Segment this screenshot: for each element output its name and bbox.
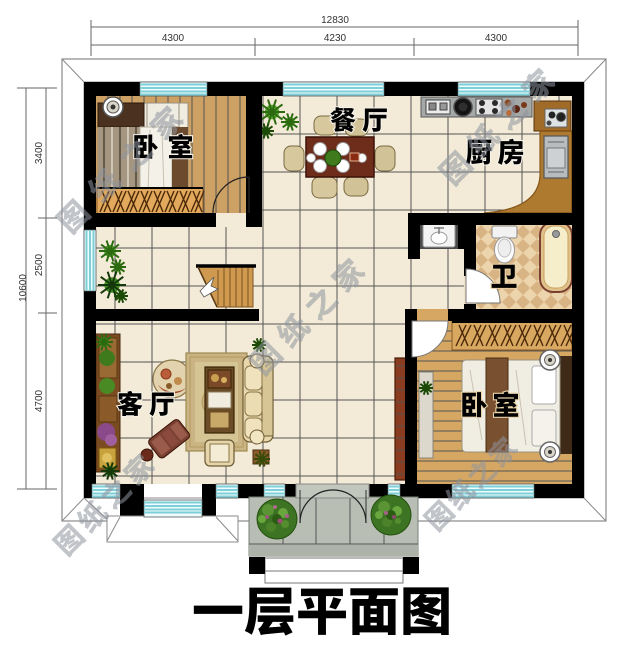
svg-text:10600: 10600 [18, 274, 29, 302]
svg-text:4300: 4300 [162, 33, 185, 44]
svg-text:4300: 4300 [485, 33, 508, 44]
svg-text:4230: 4230 [324, 33, 347, 44]
svg-text:3400: 3400 [34, 141, 45, 164]
svg-text:2500: 2500 [34, 253, 45, 276]
svg-text:4700: 4700 [34, 389, 45, 412]
svg-text:12830: 12830 [321, 15, 349, 26]
